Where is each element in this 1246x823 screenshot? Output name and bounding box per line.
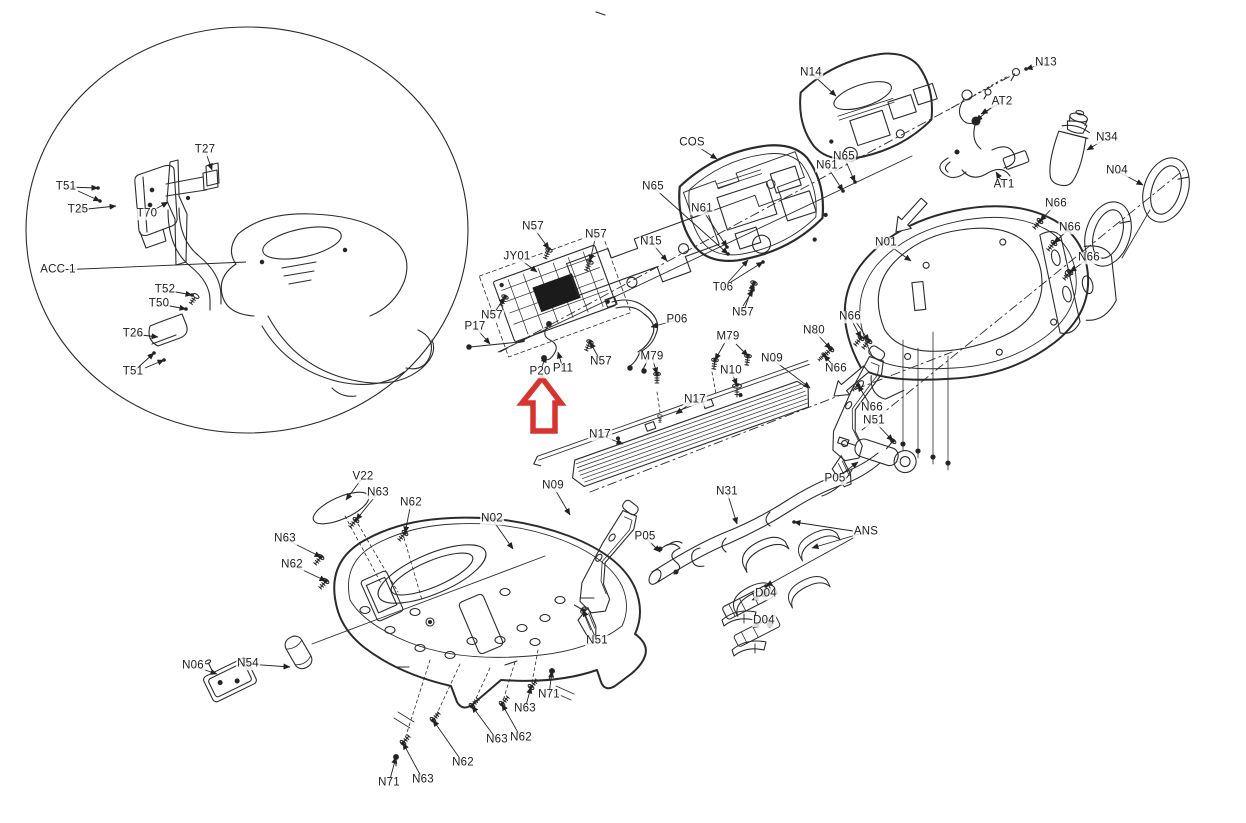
basepan-n02 [334,516,646,742]
cable-p06 [605,297,658,374]
leader-lines [58,63,1143,783]
inset-console-detail [26,27,468,433]
bolts-right [901,332,950,470]
parts-diagram: T27T51T25T70ACC-1T52T50T26T51N14N13AT2AT… [0,0,1246,823]
overlay-n15-rear [683,152,808,229]
rail-n17 [532,361,823,500]
console-cos [667,131,836,278]
bottle-n34 [1045,107,1094,189]
screw-p17 [467,341,524,349]
part-v22 [309,486,373,531]
console-n14 [789,39,947,172]
pin-n54 [282,633,315,671]
wire-at1 [940,147,1029,178]
stray-mark [596,12,605,15]
diagram-artwork [0,0,1246,823]
ring-n04-right [1135,152,1197,228]
hood-n01 [825,176,1132,404]
up-arrow-highlight-icon [522,378,561,431]
bracket-n06 [196,645,257,703]
wire-p05 [658,470,852,574]
tube-n31 [647,453,880,586]
endcaps-ans [722,524,841,656]
